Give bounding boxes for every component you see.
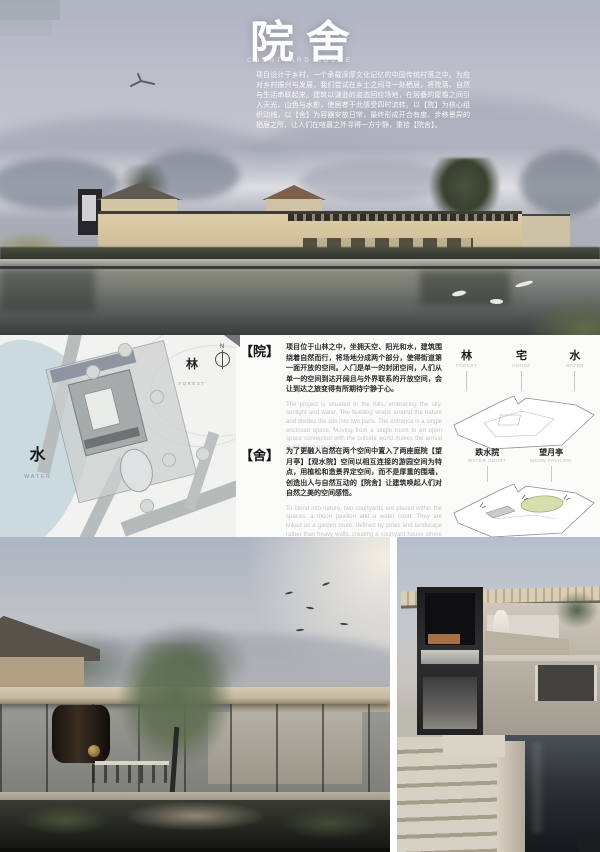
site-elements-labels: 林 FOREST 宅 HOUSE 水 WATER <box>456 347 584 391</box>
courtyard-labels: 跌水院 WATER COURT 望月亭 MOON PAVILION <box>468 447 572 482</box>
building-extension <box>522 214 570 249</box>
lower-glass-opening <box>423 677 477 729</box>
flying-bird-icon <box>127 72 157 92</box>
she-text-cn: 为了更融入自然在两个空间中置入了两座庭院【望月亭】【观水院】空间以相互连接的游园… <box>286 447 442 500</box>
moss-patch <box>280 807 380 839</box>
diagram-label-house: 宅 HOUSE <box>512 347 531 391</box>
tree-band <box>520 150 600 216</box>
stair-landing <box>443 735 505 757</box>
diagram-label-moon-pavilion: 望月亭 MOON PAVILION <box>530 447 572 482</box>
pitched-roof-house <box>96 183 182 213</box>
water-bank <box>0 259 600 266</box>
stone-path <box>128 802 262 830</box>
forest-label: 林 FOREST <box>170 355 214 390</box>
hero-render-section: 院舍 COURTYARD HOUSE 项目设计于乡村，一个承载深厚文化记忆的中国… <box>0 0 600 335</box>
concept-block-she: 【舍】 为了更融入自然在两个空间中置入了两座庭院【望月亭】【观水院】空间以相互连… <box>240 447 442 537</box>
site-isometric-diagram <box>444 389 600 451</box>
bottom-edge <box>0 848 390 852</box>
diagram-label-water-court: 跌水院 WATER COURT <box>468 447 506 482</box>
she-heading: 【舍】 <box>240 445 279 464</box>
concrete-beam <box>483 655 600 661</box>
wood-bench <box>428 634 460 644</box>
pitched-roof-house <box>262 185 326 213</box>
leader-line <box>466 371 467 391</box>
diagram-column: 林 FOREST 宅 HOUSE 水 WATER <box>444 335 600 537</box>
pool-stair-render <box>397 537 600 852</box>
plan-tree <box>162 453 176 467</box>
brass-orb <box>88 745 100 757</box>
bottom-renders <box>0 537 600 852</box>
north-compass-icon: N <box>211 344 233 367</box>
diagram-label-forest: 林 FOREST <box>456 347 477 391</box>
leader-line <box>574 371 575 391</box>
main-building-wall <box>98 211 522 252</box>
yuan-text-cn: 项目位于山林之中，坐拥天空、阳光和水，建筑围绕着自然而行，将场地分成两个部分，使… <box>286 343 442 396</box>
plan-tree <box>140 499 154 513</box>
water-label: 水 WATER <box>14 441 62 483</box>
plan-tree <box>196 447 210 461</box>
yuan-text-en: The project is situated in the hills, em… <box>286 401 442 453</box>
poster-subtitle: COURTYARD HOUSE <box>0 58 600 64</box>
reed-grass <box>526 293 600 335</box>
rooftop-plant <box>555 591 599 629</box>
clerestory-band <box>288 214 518 221</box>
plan-tree <box>118 343 132 357</box>
dark-cylinder-hearth <box>52 705 110 763</box>
pond-water <box>0 269 600 335</box>
diagram-label-water: 水 WATER <box>566 347 584 391</box>
dining-chairs <box>92 765 174 783</box>
plan-tree <box>86 365 100 379</box>
yuan-heading: 【院】 <box>240 341 279 360</box>
analysis-section: 水 WATER 林 FOREST N 【院】 项目位于山林之中，坐拥天空、阳光和… <box>0 335 600 537</box>
tree-reflection <box>0 269 95 311</box>
architecture-poster: 院舍 COURTYARD HOUSE 项目设计于乡村，一个承载深厚文化记忆的中国… <box>0 0 600 852</box>
plan-tree <box>150 390 164 404</box>
concept-text-column: 【院】 项目位于山林之中，坐拥天空、阳光和水，建筑围绕着自然而行，将场地分成两个… <box>240 335 442 537</box>
balcony-rail <box>421 650 479 664</box>
concept-block-yuan: 【院】 项目位于山林之中，坐拥天空、阳光和水，建筑围绕着自然而行，将场地分成两个… <box>240 343 442 453</box>
dark-window <box>535 665 597 701</box>
she-text-en: To blend into nature, two courtyards are… <box>286 505 442 538</box>
project-description: 项目设计于乡村，一个承载深厚文化记忆的中国传统村落之中。为应对乡村振兴与发展，我… <box>256 71 470 131</box>
parapet-wall <box>495 741 525 852</box>
courtyard-render <box>0 537 390 852</box>
moss-patch <box>20 805 110 835</box>
shadow-corner <box>579 833 600 852</box>
site-plan: 水 WATER 林 FOREST N <box>0 335 236 537</box>
plan-shadow-wedge <box>224 335 240 347</box>
leader-line <box>521 371 522 391</box>
courtyard-isometric-diagram <box>444 479 600 537</box>
